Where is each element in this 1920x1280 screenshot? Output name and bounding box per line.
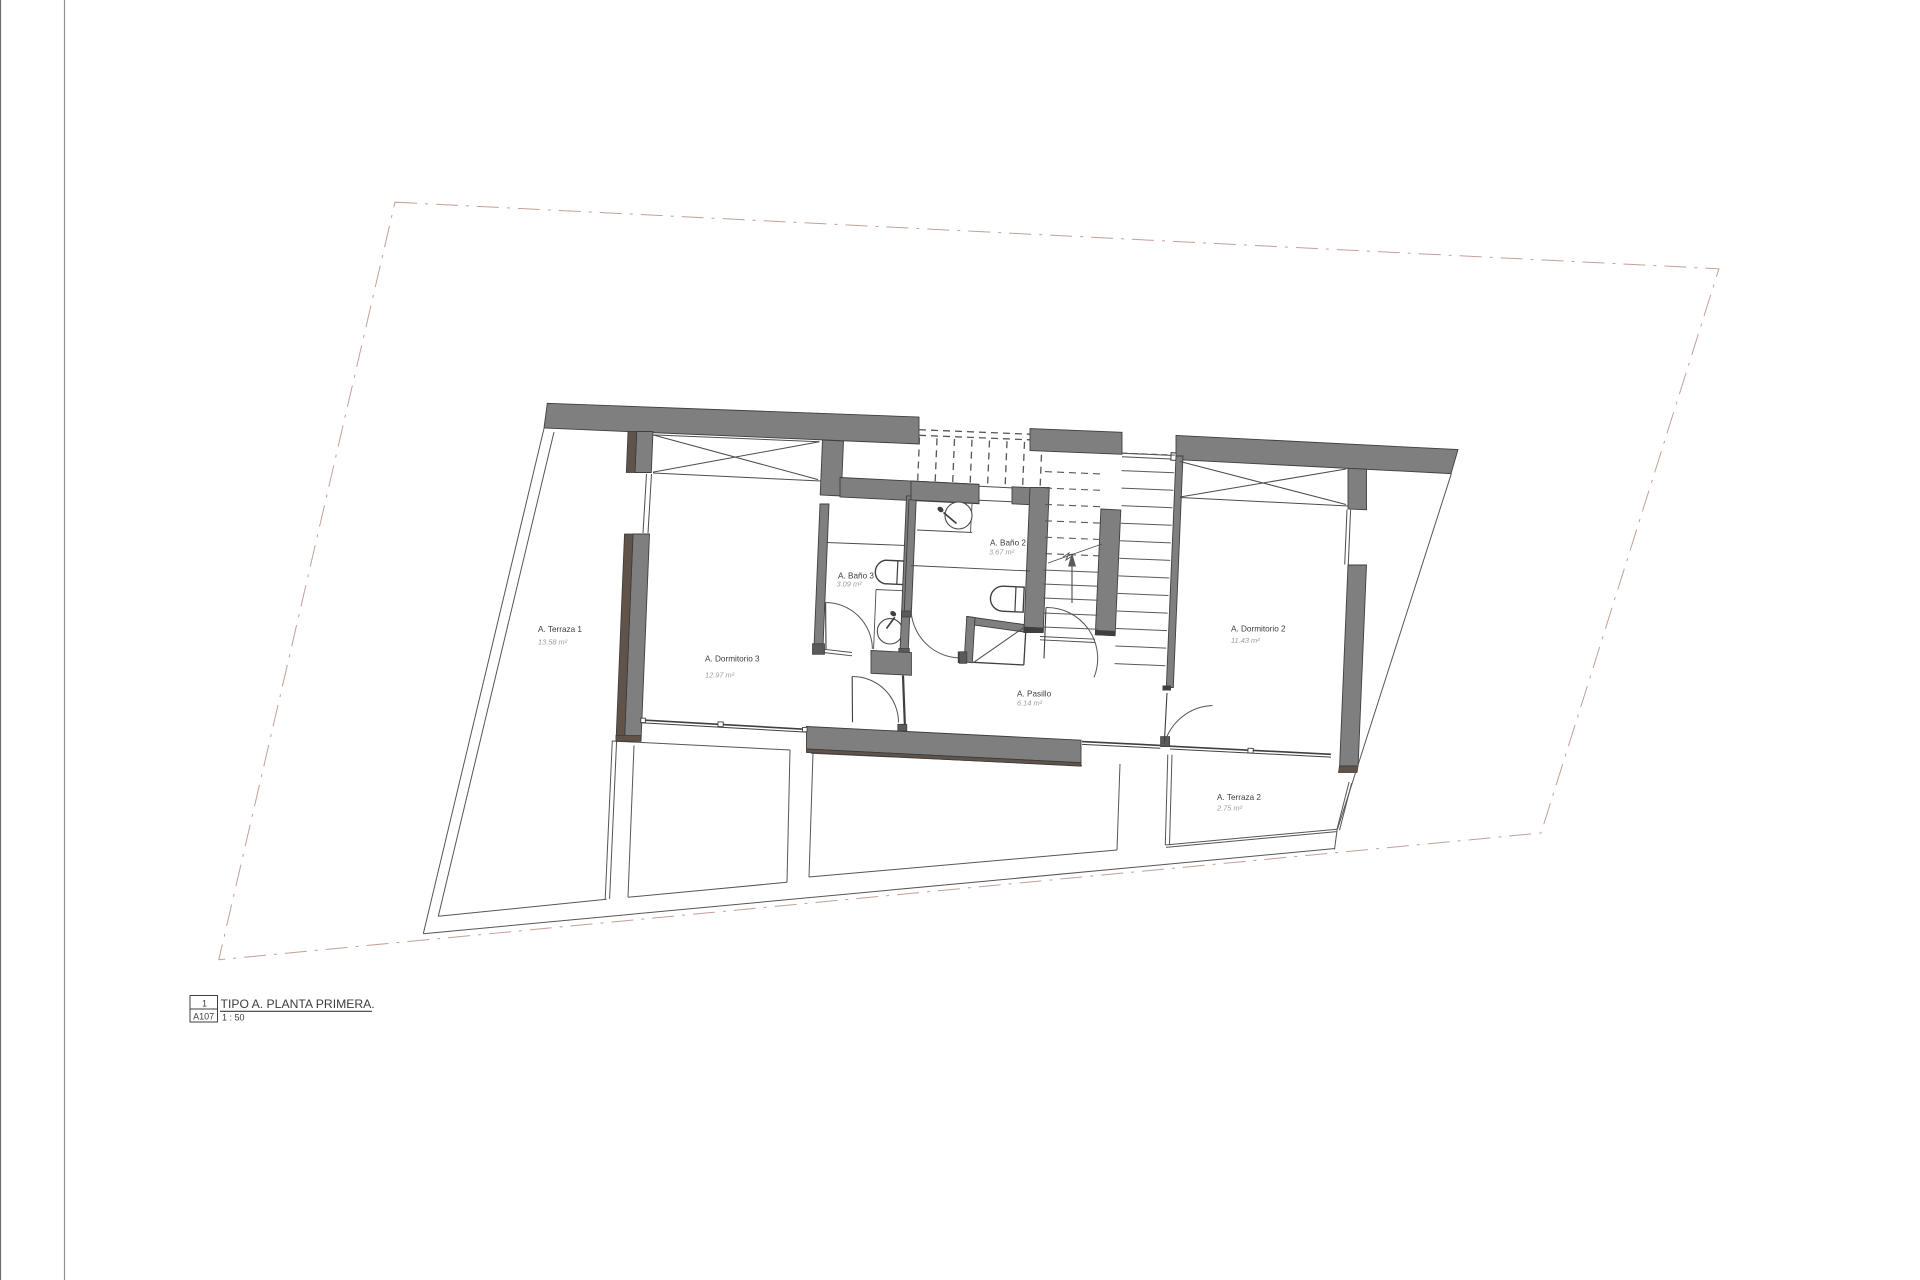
svg-text:11.43 m²: 11.43 m² — [1231, 636, 1260, 645]
svg-text:A. Terraza 2: A. Terraza 2 — [1217, 793, 1261, 802]
svg-text:A. Pasillo: A. Pasillo — [1017, 690, 1052, 699]
svg-text:6.14 m²: 6.14 m² — [1017, 699, 1043, 708]
svg-text:A107: A107 — [193, 1012, 214, 1022]
svg-text:A. Dormitorio 2: A. Dormitorio 2 — [1231, 625, 1286, 634]
svg-text:3.67 m²: 3.67 m² — [989, 548, 1015, 557]
svg-text:3.09 m²: 3.09 m² — [837, 580, 863, 589]
svg-text:13.58 m²: 13.58 m² — [538, 638, 568, 647]
svg-text:TIPO A. PLANTA PRIMERA.: TIPO A. PLANTA PRIMERA. — [221, 997, 375, 1011]
svg-text:1 : 50: 1 : 50 — [222, 1013, 245, 1023]
svg-text:A. Terraza 1: A. Terraza 1 — [538, 625, 582, 634]
svg-text:A. Baño 2: A. Baño 2 — [990, 539, 1026, 548]
svg-text:2.75 m²: 2.75 m² — [1216, 804, 1243, 813]
svg-text:1: 1 — [202, 999, 207, 1009]
svg-text:12.97 m²: 12.97 m² — [705, 671, 735, 680]
svg-text:A. Dormitorio 3: A. Dormitorio 3 — [705, 655, 760, 664]
